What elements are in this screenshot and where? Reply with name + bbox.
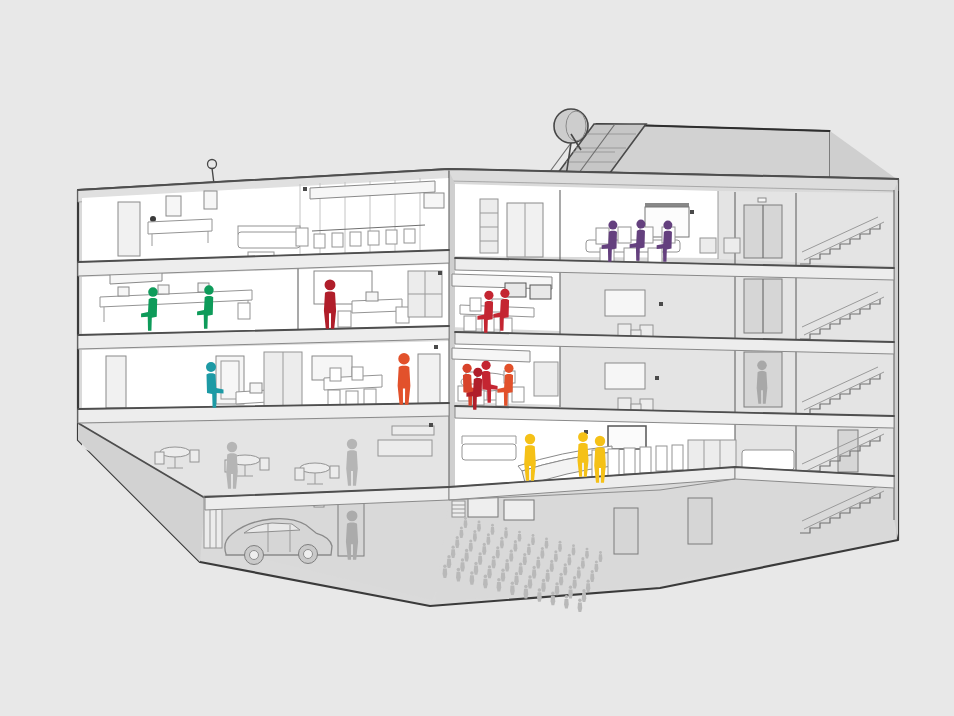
door [418,354,440,404]
wall-picture [204,191,217,209]
figure-auditorium-audience [474,562,479,575]
figure-auditorium-audience [568,586,573,599]
figure-auditorium-audience [536,556,540,568]
sideboard [148,219,212,234]
figure-auditorium-audience [464,517,468,528]
figure-auditorium-audience [594,561,598,572]
wall-tv [608,426,646,449]
figure-auditorium-audience [518,562,522,575]
figure-auditorium-audience [478,552,482,565]
figure-auditorium-audience [509,550,513,562]
door [614,508,638,554]
figure-auditorium-audience [491,556,495,569]
figure-auditorium-audience [558,541,562,552]
figure-auditorium-audience [469,539,473,551]
wall-whiteboard [605,363,645,389]
figure-auditorium-audience [563,563,567,575]
monitor [118,287,129,296]
figure-auditorium-audience [527,544,531,555]
projection-screen [645,203,689,207]
figure-auditorium-audience [545,537,549,548]
figure-auditorium-audience [532,566,536,579]
figure-auditorium-audience [497,578,502,592]
figure-auditorium-audience [473,530,477,541]
door [688,498,712,544]
stage-screen [468,497,498,517]
figure-auditorium-audience [464,549,468,562]
figure-auditorium-audience [443,564,448,578]
figure-auditorium-audience [523,553,527,565]
wall-screen [530,285,551,299]
figure-auditorium-audience [510,581,515,595]
figure-auditorium-audience [537,588,542,602]
figure-auditorium-audience [599,551,603,562]
figure-auditorium-audience [586,579,590,592]
servery-counter [378,440,432,456]
figure-auditorium-audience [477,520,481,531]
door [106,356,126,408]
wall-picture [424,193,444,208]
figure-auditorium-audience [451,545,455,558]
figure-auditorium-audience [551,592,556,606]
figure-auditorium-audience [482,543,486,555]
figure-auditorium-audience [577,567,581,579]
figure-auditorium-audience [559,573,563,586]
figure-auditorium-audience [513,540,517,551]
armchair [700,238,716,253]
armchair [724,238,740,253]
figure-auditorium-audience [531,534,535,545]
figure-auditorium-audience [487,565,492,578]
figure-auditorium-audience [581,557,585,568]
figure-auditorium-audience [550,560,554,572]
figure-auditorium-audience [572,544,576,555]
figure-auditorium-audience [567,554,571,565]
figure-auditorium-audience [496,546,500,558]
figure-auditorium-audience [514,572,519,585]
figure-auditorium-audience [541,579,546,592]
figure-auditorium-audience [555,582,560,595]
whiteboard [314,271,372,304]
figure-auditorium-audience [545,569,549,582]
plant-icon [150,216,156,222]
figure-auditorium-audience [564,595,569,609]
figure-auditorium-audience [486,533,490,544]
figure-auditorium-audience [524,585,529,599]
sideboard [534,362,558,396]
figure-auditorium-audience [500,537,504,548]
figure-auditorium-audience [501,569,506,582]
wall-whiteboard [605,290,645,316]
figure-auditorium-audience [590,570,594,582]
figure-auditorium-audience [554,550,558,561]
figure-auditorium-audience [572,576,576,589]
figure-auditorium-audience [447,555,452,568]
figure-auditorium-audience [528,575,533,588]
figure-auditorium-audience [470,571,475,585]
figure-auditorium-audience [578,598,583,612]
building-cutaway-illustration [0,0,954,716]
stage-screen [504,500,534,520]
shelf [480,199,498,253]
figure-auditorium-audience [540,547,544,558]
monitor [250,383,262,393]
monitor [158,285,169,294]
wall-picture [166,196,181,216]
figure-auditorium-audience [483,575,488,589]
lobby-sofa [462,444,516,460]
figure-auditorium-audience [459,527,463,538]
figure-auditorium-audience [491,524,495,535]
door [118,202,140,256]
figure-auditorium-audience [585,548,589,559]
figure-auditorium-audience [460,558,465,571]
section-cut-wall [449,171,455,500]
illustration-stage [0,0,954,716]
figure-auditorium-audience [455,536,459,548]
window-band [452,348,530,362]
figure-auditorium-audience [456,568,461,582]
figure-auditorium-audience [582,589,587,602]
monitor [366,292,378,301]
figure-auditorium-audience [504,527,508,538]
figure-auditorium-audience [505,559,509,572]
figure-auditorium-audience [518,531,522,542]
